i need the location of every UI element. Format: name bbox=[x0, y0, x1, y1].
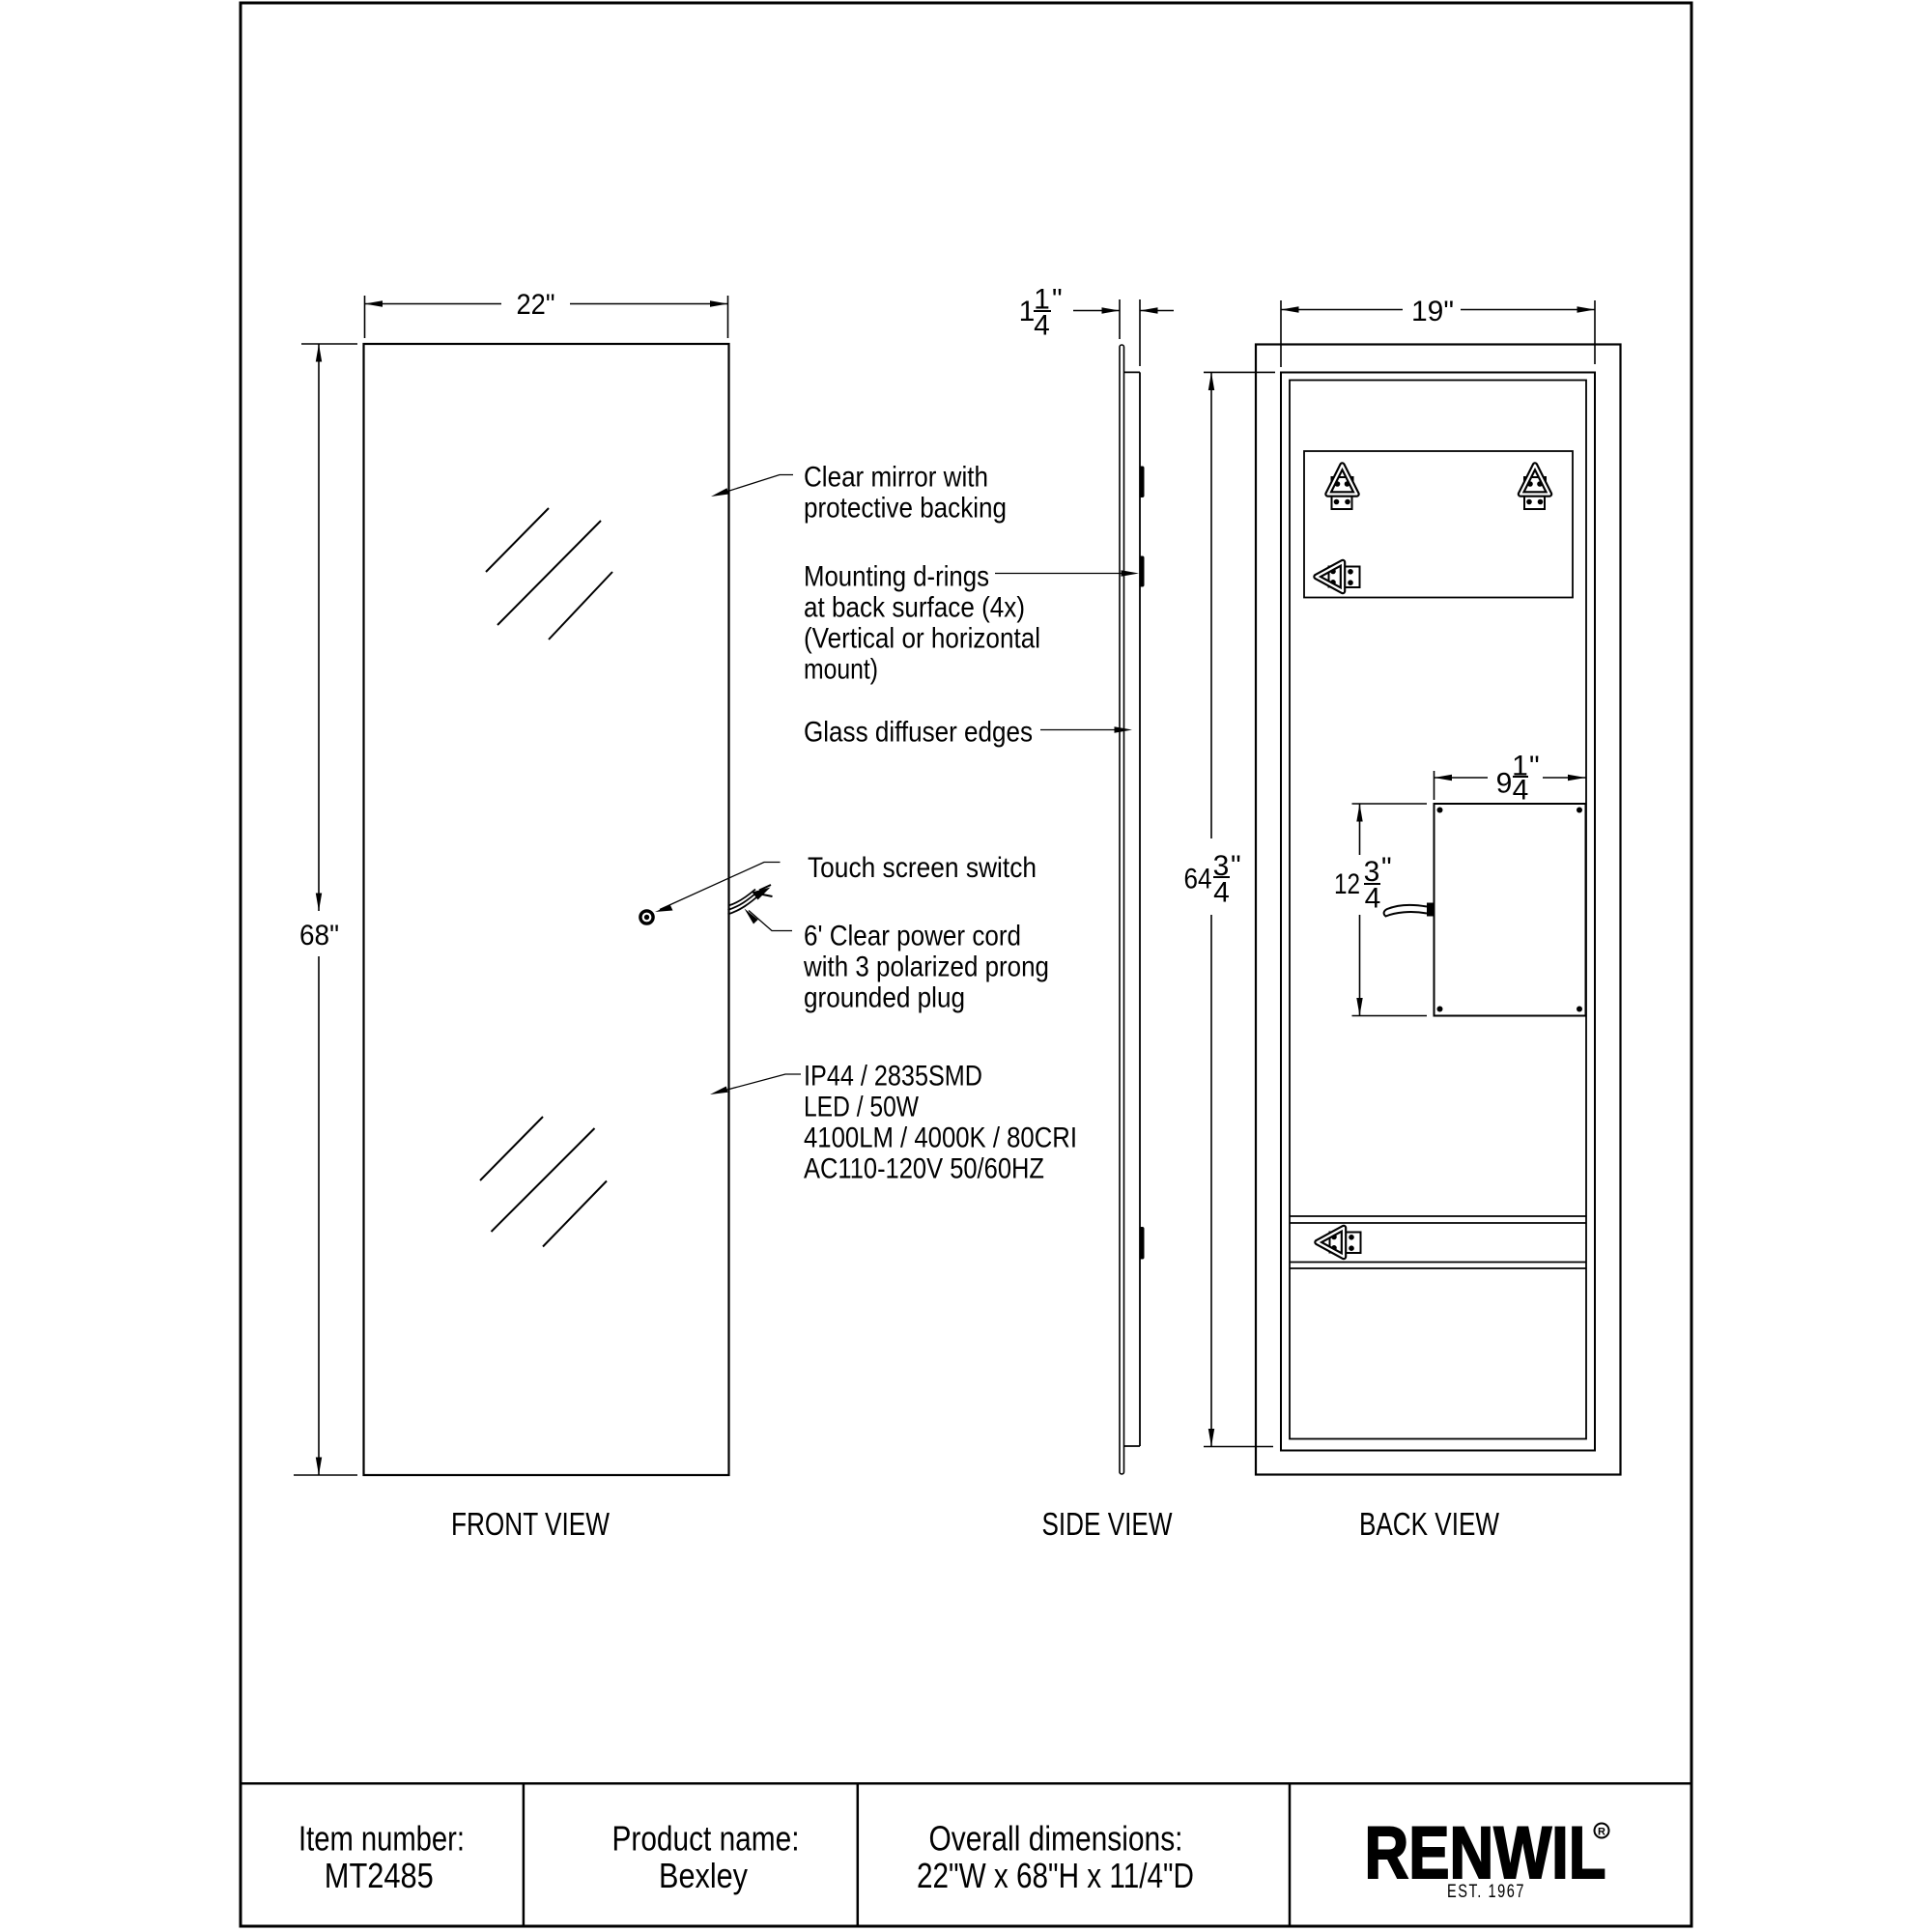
svg-text:22"W x 68"H x 11/4"D: 22"W x 68"H x 11/4"D bbox=[917, 1856, 1194, 1895]
svg-text:FRONT VIEW: FRONT VIEW bbox=[451, 1506, 611, 1542]
svg-text:Glass diffuser edges: Glass diffuser edges bbox=[804, 717, 1033, 749]
svg-text:Bexley: Bexley bbox=[659, 1856, 748, 1895]
svg-text:SIDE VIEW: SIDE VIEW bbox=[1042, 1506, 1174, 1542]
svg-text:Overall dimensions:: Overall dimensions: bbox=[929, 1819, 1183, 1859]
svg-text:LED / 50W: LED / 50W bbox=[804, 1092, 920, 1123]
svg-text:IP44 / 2835SMD: IP44 / 2835SMD bbox=[804, 1061, 982, 1093]
svg-text:1: 1 bbox=[1019, 296, 1036, 327]
svg-text:9: 9 bbox=[1496, 768, 1513, 800]
svg-text:with 3 polarized prong: with 3 polarized prong bbox=[803, 952, 1049, 983]
svg-text:Mounting d-rings: Mounting d-rings bbox=[804, 561, 989, 593]
svg-text:12: 12 bbox=[1334, 868, 1360, 900]
svg-text:4: 4 bbox=[1513, 775, 1529, 807]
svg-text:(Vertical or horizontal: (Vertical or horizontal bbox=[804, 623, 1040, 655]
svg-text:protective backing: protective backing bbox=[804, 493, 1007, 525]
svg-text:": " bbox=[1231, 850, 1241, 882]
svg-text:Product name:: Product name: bbox=[612, 1819, 800, 1859]
svg-text:4: 4 bbox=[1213, 877, 1230, 909]
svg-text:R: R bbox=[1598, 1827, 1605, 1838]
svg-text:AC110-120V 50/60HZ: AC110-120V 50/60HZ bbox=[804, 1153, 1044, 1185]
svg-text:4100LM / 4000K / 80CRI: 4100LM / 4000K / 80CRI bbox=[804, 1122, 1077, 1154]
svg-text:4: 4 bbox=[1034, 310, 1050, 342]
svg-text:6' Clear power cord: 6' Clear power cord bbox=[804, 921, 1021, 952]
svg-text:": " bbox=[1381, 852, 1392, 884]
svg-text:22": 22" bbox=[517, 289, 555, 321]
svg-text:Clear mirror with: Clear mirror with bbox=[804, 462, 988, 494]
svg-text:BACK VIEW: BACK VIEW bbox=[1359, 1506, 1500, 1542]
svg-text:MT2485: MT2485 bbox=[325, 1856, 434, 1895]
svg-text:mount): mount) bbox=[804, 654, 878, 686]
svg-text:68": 68" bbox=[299, 920, 339, 952]
svg-text:4: 4 bbox=[1365, 883, 1381, 915]
svg-text:grounded plug: grounded plug bbox=[804, 982, 965, 1014]
svg-text:EST. 1967: EST. 1967 bbox=[1447, 1882, 1525, 1902]
svg-text:19": 19" bbox=[1411, 296, 1454, 327]
svg-text:Touch screen switch: Touch screen switch bbox=[808, 852, 1037, 884]
svg-text:64: 64 bbox=[1184, 864, 1212, 895]
svg-text:Item number:: Item number: bbox=[298, 1819, 465, 1859]
svg-text:": " bbox=[1529, 751, 1540, 782]
svg-text:at back surface (4x): at back surface (4x) bbox=[804, 592, 1025, 624]
svg-text:": " bbox=[1052, 284, 1063, 316]
